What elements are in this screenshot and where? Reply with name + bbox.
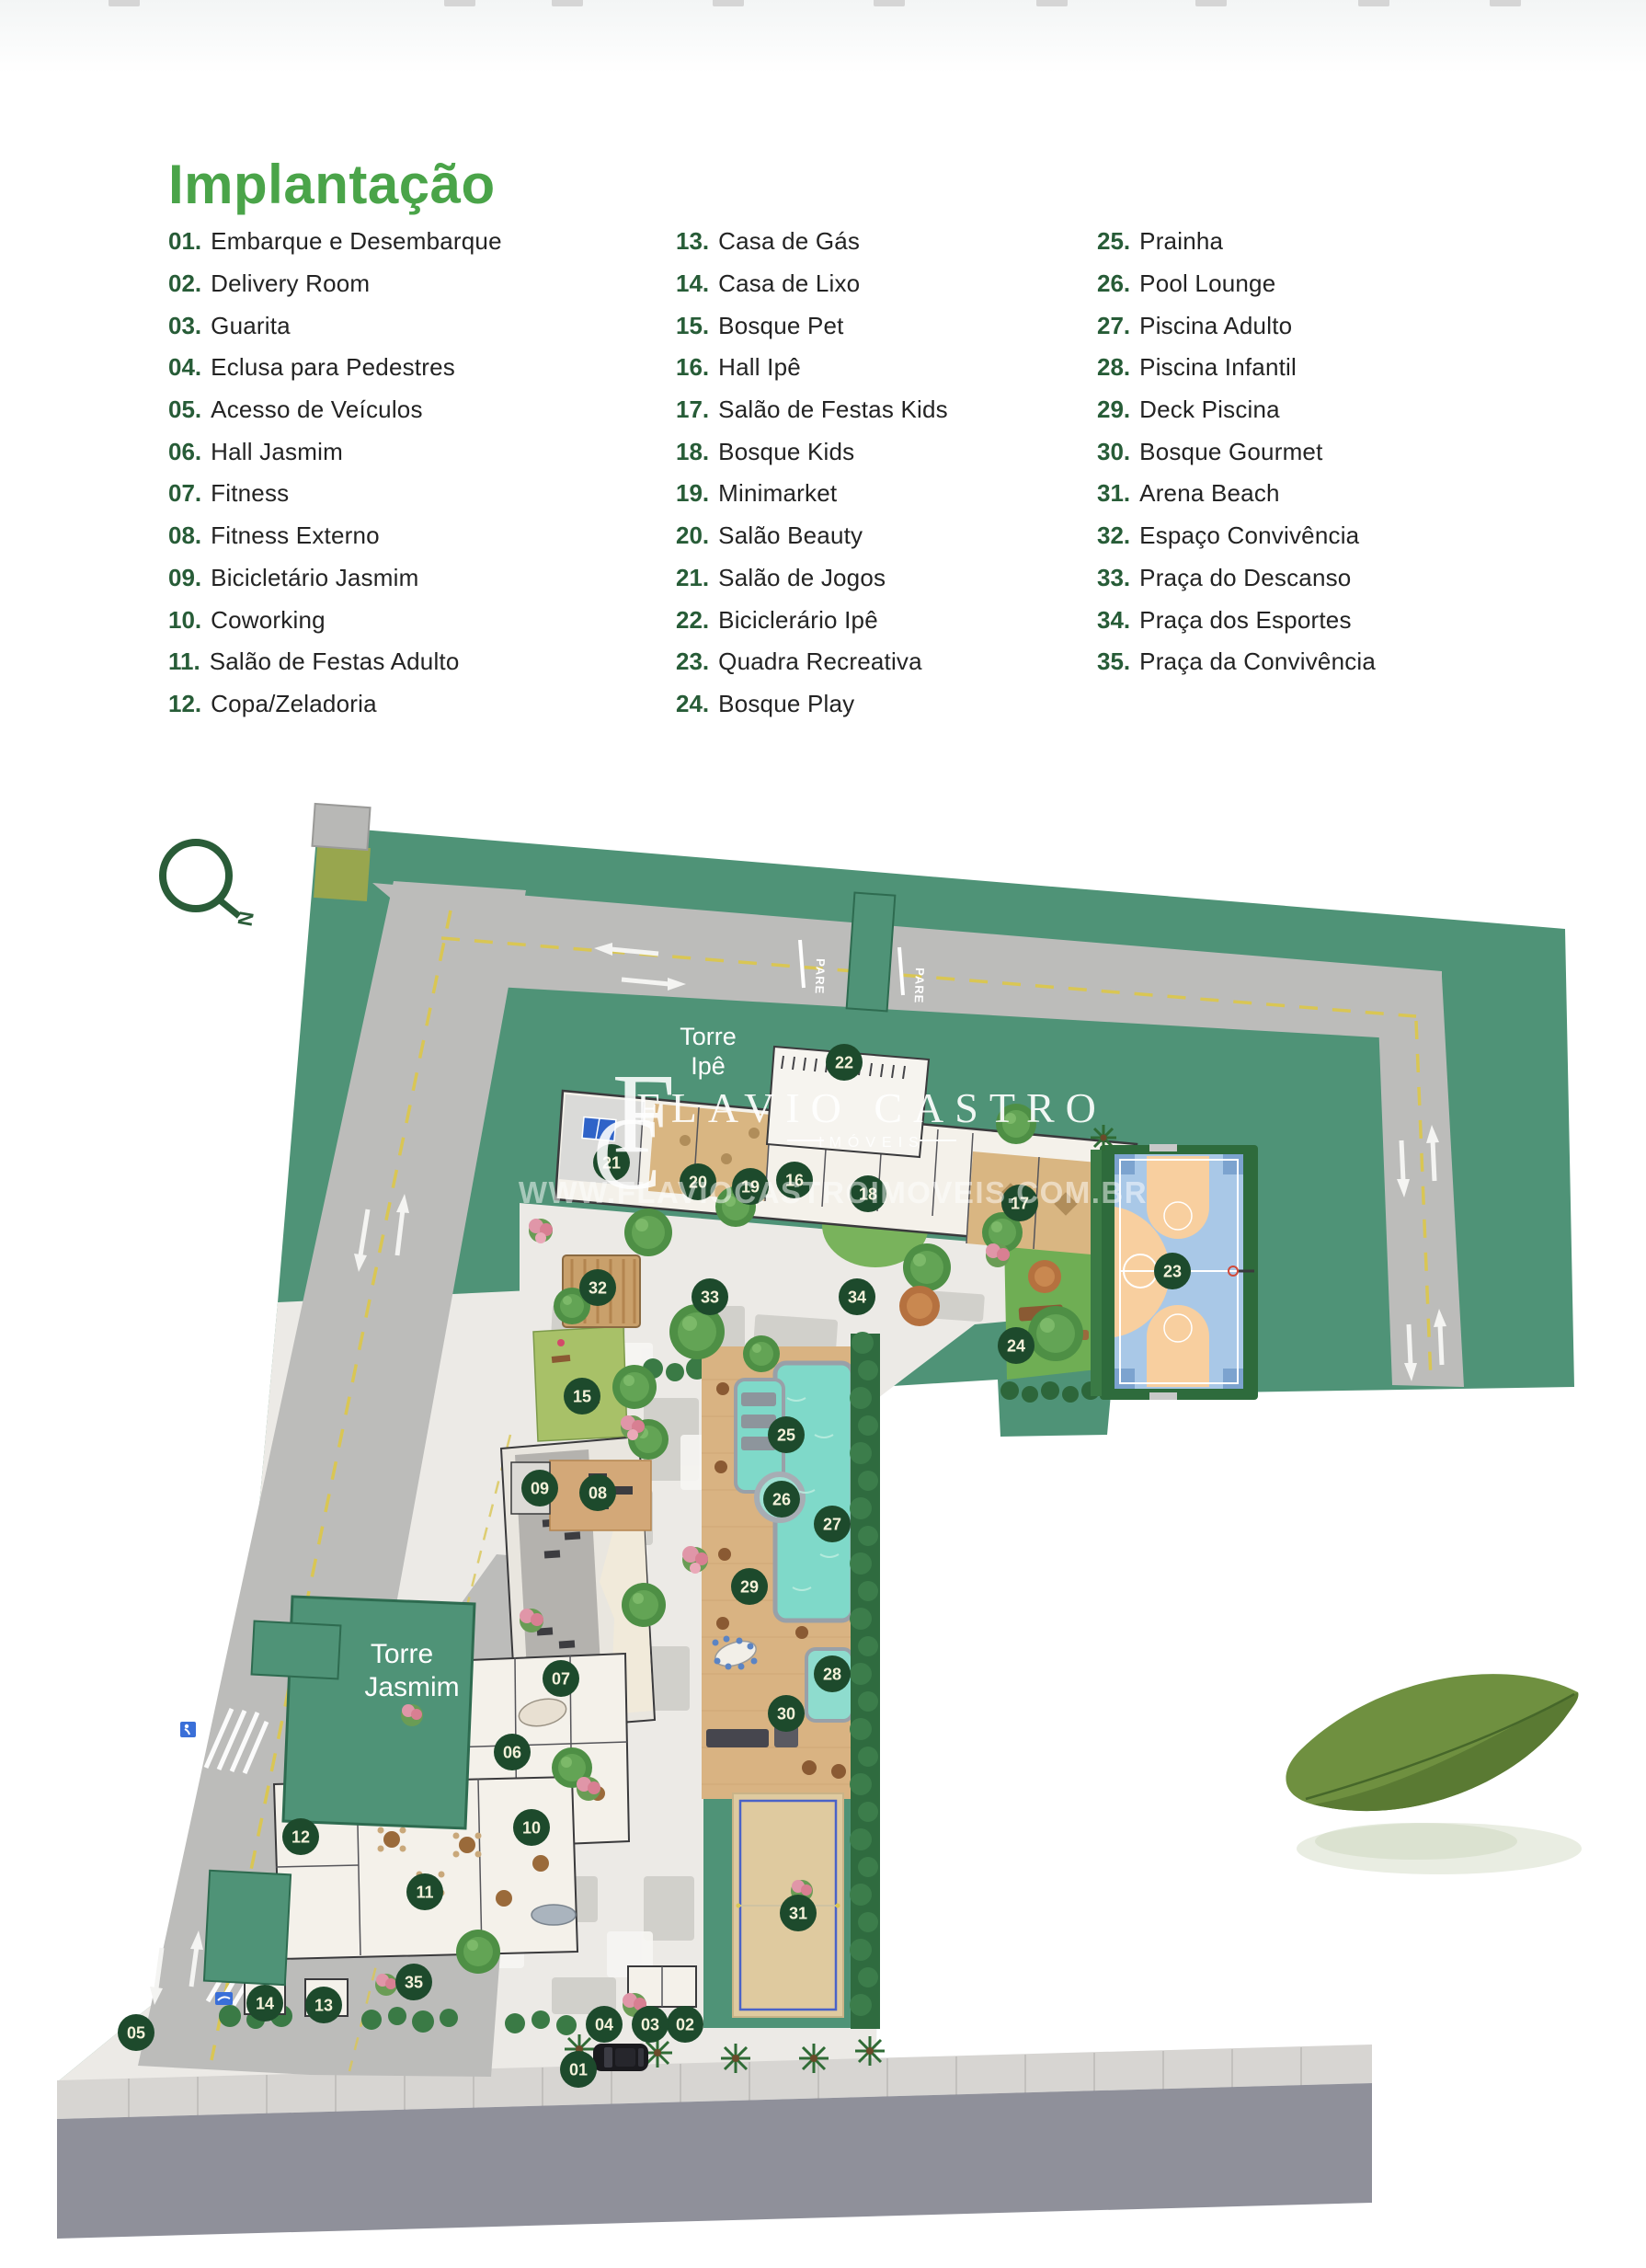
- legend-item: 34.Praça dos Esportes: [1097, 599, 1376, 641]
- tab-sliver: [874, 0, 905, 6]
- legend-item-number: 24.: [676, 690, 709, 718]
- legend-item-number: 14.: [676, 269, 709, 298]
- plan-marker-01: 01: [560, 2051, 597, 2088]
- plan-marker-25: 25: [768, 1416, 805, 1453]
- legend-item-label: Praça dos Esportes: [1139, 606, 1352, 635]
- legend-item: 33.Praça do Descanso: [1097, 557, 1376, 600]
- plan-marker-26: 26: [763, 1481, 800, 1518]
- svg-text:02: 02: [676, 2016, 694, 2034]
- legend-item-label: Quadra Recreativa: [718, 647, 922, 676]
- legend-item-label: Fitness Externo: [211, 521, 380, 550]
- svg-text:27: 27: [823, 1516, 841, 1534]
- legend-item-label: Praça da Convivência: [1139, 647, 1376, 676]
- plan-marker-28: 28: [814, 1655, 851, 1692]
- plan-marker-14: 14: [246, 1985, 283, 2022]
- legend-item: 18.Bosque Kids: [676, 430, 948, 473]
- legend-item-number: 19.: [676, 479, 709, 508]
- legend-item-number: 28.: [1097, 353, 1130, 382]
- plan-marker-02: 02: [667, 2006, 703, 2043]
- plan-marker-05: 05: [118, 2014, 154, 2051]
- legend-item: 01.Embarque e Desembarque: [168, 221, 502, 263]
- legend-item-label: Piscina Adulto: [1139, 312, 1292, 340]
- pare-marking-top-road-1: PARE: [813, 958, 828, 995]
- legend-item-number: 35.: [1097, 647, 1130, 676]
- svg-text:26: 26: [772, 1491, 791, 1509]
- site-plan-illustration: PARE PARE PARE: [0, 791, 1646, 2268]
- compass-icon: N: [163, 842, 258, 928]
- legend-item-label: Arena Beach: [1139, 479, 1280, 508]
- plan-marker-06: 06: [494, 1734, 531, 1770]
- legend-item-label: Deck Piscina: [1139, 395, 1280, 424]
- svg-text:25: 25: [777, 1426, 795, 1445]
- legend-item: 29.Deck Piscina: [1097, 389, 1376, 431]
- legend-item: 32.Espaço Convivência: [1097, 515, 1376, 557]
- svg-text:12: 12: [291, 1828, 310, 1847]
- legend-item: 25.Prainha: [1097, 221, 1376, 263]
- svg-text:03: 03: [641, 2016, 659, 2034]
- legend-item-label: Eclusa para Pedestres: [211, 353, 455, 382]
- tab-sliver: [1195, 0, 1227, 6]
- legend-item-label: Salão de Festas Adulto: [210, 647, 460, 676]
- legend-item-label: Bosque Play: [718, 690, 854, 718]
- legend-item-number: 10.: [168, 606, 201, 635]
- legend-item-label: Embarque e Desembarque: [211, 227, 502, 256]
- plan-marker-35: 35: [395, 1964, 432, 2000]
- tab-sliver: [713, 0, 744, 6]
- legend-item: 19.Minimarket: [676, 473, 948, 515]
- legend-item: 20.Salão Beauty: [676, 515, 948, 557]
- svg-text:09: 09: [531, 1480, 549, 1498]
- svg-text:15: 15: [573, 1388, 591, 1406]
- legend-item-number: 05.: [168, 395, 201, 424]
- plan-marker-08: 08: [579, 1474, 616, 1511]
- legend-item-number: 21.: [676, 564, 709, 592]
- legend-item-label: Bosque Pet: [718, 312, 843, 340]
- svg-text:35: 35: [405, 1974, 423, 1992]
- legend-column-3: 25.Prainha26.Pool Lounge27.Piscina Adult…: [1097, 221, 1376, 683]
- svg-text:05: 05: [127, 2024, 145, 2043]
- legend-item: 05.Acesso de Veículos: [168, 389, 502, 431]
- torre-jasmim-label-line1: Torre: [371, 1639, 433, 1669]
- legend-item-number: 07.: [168, 479, 201, 508]
- legend-item: 13.Casa de Gás: [676, 221, 948, 263]
- legend-item-number: 32.: [1097, 521, 1130, 550]
- watermark-url: WWW.FLAVIOCASTROIMOVEIS.COM.BR: [519, 1175, 1148, 1209]
- legend-item-number: 15.: [676, 312, 709, 340]
- legend-item-number: 26.: [1097, 269, 1130, 298]
- svg-text:33: 33: [701, 1289, 719, 1307]
- legend-item: 30.Bosque Gourmet: [1097, 430, 1376, 473]
- legend-item-label: Salão Beauty: [718, 521, 863, 550]
- page-top-fade: [0, 0, 1646, 74]
- svg-text:23: 23: [1163, 1263, 1182, 1281]
- legend-item-label: Piscina Infantil: [1139, 353, 1297, 382]
- legend-item-label: Minimarket: [718, 479, 837, 508]
- legend-item-number: 20.: [676, 521, 709, 550]
- legend-item-label: Bosque Kids: [718, 438, 854, 466]
- plan-marker-31: 31: [780, 1895, 817, 1931]
- legend-item: 06.Hall Jasmim: [168, 430, 502, 473]
- svg-text:11: 11: [416, 1884, 433, 1902]
- svg-text:14: 14: [256, 1995, 274, 2013]
- svg-text:24: 24: [1007, 1337, 1025, 1356]
- svg-text:10: 10: [522, 1819, 541, 1838]
- svg-text:22: 22: [835, 1054, 853, 1072]
- legend-item-label: Delivery Room: [211, 269, 370, 298]
- legend-item: 14.Casa de Lixo: [676, 263, 948, 305]
- plan-marker-07: 07: [543, 1660, 579, 1697]
- legend-column-1: 01.Embarque e Desembarque02.Delivery Roo…: [168, 221, 502, 725]
- svg-text:06: 06: [503, 1744, 521, 1762]
- plan-marker-10: 10: [513, 1809, 550, 1846]
- legend-item: 15.Bosque Pet: [676, 304, 948, 347]
- legend-item-label: Espaço Convivência: [1139, 521, 1359, 550]
- legend-item-number: 09.: [168, 564, 201, 592]
- tab-sliver: [109, 0, 140, 6]
- legend-item-number: 22.: [676, 606, 709, 635]
- legend-item-number: 25.: [1097, 227, 1130, 256]
- plan-marker-27: 27: [814, 1506, 851, 1542]
- legend-item-number: 27.: [1097, 312, 1130, 340]
- pare-marking-top-road-2: PARE: [912, 968, 927, 1004]
- watermark-tagline: IMÓVEIS: [818, 1133, 925, 1151]
- plan-marker-29: 29: [731, 1568, 768, 1605]
- svg-text:32: 32: [589, 1279, 607, 1298]
- legend-item-number: 18.: [676, 438, 709, 466]
- legend-item: 17.Salão de Festas Kids: [676, 389, 948, 431]
- svg-text:34: 34: [848, 1289, 866, 1307]
- legend-item: 04.Eclusa para Pedestres: [168, 347, 502, 389]
- svg-text:04: 04: [595, 2016, 613, 2034]
- legend-item: 07.Fitness: [168, 473, 502, 515]
- plan-marker-11: 11: [406, 1873, 443, 1910]
- plan-marker-09: 09: [521, 1470, 558, 1506]
- legend-item-number: 33.: [1097, 564, 1130, 592]
- legend-item: 10.Coworking: [168, 599, 502, 641]
- legend-item: 23.Quadra Recreativa: [676, 641, 948, 683]
- legend-item: 08.Fitness Externo: [168, 515, 502, 557]
- pedestrian-crossing-canopy: [847, 893, 896, 1012]
- svg-text:30: 30: [777, 1705, 795, 1724]
- legend-item-label: Coworking: [211, 606, 326, 635]
- page-title: Implantação: [168, 153, 496, 216]
- legend-item: 21.Salão de Jogos: [676, 557, 948, 600]
- legend-item: 03.Guarita: [168, 304, 502, 347]
- legend-item-number: 03.: [168, 312, 201, 340]
- legend-item-label: Biciclerário Ipê: [718, 606, 878, 635]
- tab-sliver: [1036, 0, 1068, 6]
- plan-marker-13: 13: [305, 1987, 342, 2023]
- plan-marker-23: 23: [1154, 1253, 1191, 1289]
- legend-item-number: 13.: [676, 227, 709, 256]
- plan-marker-12: 12: [282, 1818, 319, 1855]
- svg-text:07: 07: [552, 1670, 570, 1689]
- legend-item-number: 06.: [168, 438, 201, 466]
- plan-marker-03: 03: [632, 2006, 669, 2043]
- legend-item-label: Hall Jasmim: [211, 438, 343, 466]
- legend-item-number: 17.: [676, 395, 709, 424]
- compass-north-label: N: [233, 910, 257, 928]
- legend-item-number: 34.: [1097, 606, 1130, 635]
- legend-item: 22.Biciclerário Ipê: [676, 599, 948, 641]
- legend-item-number: 31.: [1097, 479, 1130, 508]
- legend-item-label: Casa de Lixo: [718, 269, 860, 298]
- legend-item-label: Bicicletário Jasmim: [211, 564, 418, 592]
- svg-text:08: 08: [589, 1484, 607, 1503]
- legend-item-label: Pool Lounge: [1139, 269, 1275, 298]
- torre-ipe-label-line1: Torre: [680, 1023, 737, 1050]
- legend-item-label: Praça do Descanso: [1139, 564, 1351, 592]
- legend-item-label: Casa de Gás: [718, 227, 860, 256]
- legend-item-label: Salão de Jogos: [718, 564, 886, 592]
- plan-marker-33: 33: [692, 1278, 728, 1315]
- legend-item: 09.Bicicletário Jasmim: [168, 557, 502, 600]
- legend-item-number: 29.: [1097, 395, 1130, 424]
- svg-text:01: 01: [569, 2061, 588, 2079]
- legend-item-number: 02.: [168, 269, 201, 298]
- legend-item-number: 01.: [168, 227, 201, 256]
- legend-item-number: 04.: [168, 353, 201, 382]
- legend-item-number: 12.: [168, 690, 201, 718]
- tab-sliver: [552, 0, 583, 6]
- svg-text:13: 13: [314, 1997, 333, 2015]
- legend-item: 28.Piscina Infantil: [1097, 347, 1376, 389]
- legend-item: 12.Copa/Zeladoria: [168, 683, 502, 726]
- legend-item-label: Fitness: [211, 479, 289, 508]
- plan-marker-15: 15: [564, 1378, 600, 1415]
- svg-text:28: 28: [823, 1666, 841, 1684]
- plan-marker-24: 24: [998, 1327, 1034, 1364]
- plan-marker-32: 32: [579, 1269, 616, 1306]
- legend-item: 02.Delivery Room: [168, 263, 502, 305]
- plan-marker-30: 30: [768, 1695, 805, 1732]
- watermark-name: FLAVIO CASTRO: [636, 1084, 1107, 1131]
- legend-item-label: Bosque Gourmet: [1139, 438, 1322, 466]
- tab-sliver: [1358, 0, 1389, 6]
- plan-marker-22: 22: [826, 1044, 863, 1081]
- legend-item: 26.Pool Lounge: [1097, 263, 1376, 305]
- legend-item-label: Salão de Festas Kids: [718, 395, 948, 424]
- legend-item-label: Hall Ipê: [718, 353, 801, 382]
- plan-marker-34: 34: [839, 1278, 875, 1315]
- torre-ipe-label-line2: Ipê: [691, 1052, 726, 1080]
- leaf-image: [1286, 1674, 1582, 1874]
- legend-item: 16.Hall Ipê: [676, 347, 948, 389]
- svg-text:31: 31: [789, 1905, 807, 1923]
- pool-hedge: [850, 1332, 880, 2029]
- legend-item-label: Copa/Zeladoria: [211, 690, 377, 718]
- legend-item-number: 16.: [676, 353, 709, 382]
- tab-sliver: [1490, 0, 1521, 6]
- svg-text:29: 29: [740, 1578, 759, 1597]
- car: [593, 2044, 648, 2071]
- legend-item-label: Acesso de Veículos: [211, 395, 423, 424]
- legend-item: 11.Salão de Festas Adulto: [168, 641, 502, 683]
- legend-item-number: 30.: [1097, 438, 1130, 466]
- plan-marker-04: 04: [586, 2006, 623, 2043]
- legend-item: 24.Bosque Play: [676, 683, 948, 726]
- legend-item-label: Guarita: [211, 312, 291, 340]
- legend-item-number: 23.: [676, 647, 709, 676]
- legend-item: 31.Arena Beach: [1097, 473, 1376, 515]
- legend-item-number: 08.: [168, 521, 201, 550]
- legend-item-label: Prainha: [1139, 227, 1223, 256]
- legend-item: 35.Praça da Convivência: [1097, 641, 1376, 683]
- legend-item-number: 11.: [168, 647, 200, 676]
- torre-jasmim-label-line2: Jasmim: [364, 1672, 459, 1702]
- tab-sliver: [444, 0, 475, 6]
- legend-item: 27.Piscina Adulto: [1097, 304, 1376, 347]
- legend-column-2: 13.Casa de Gás14.Casa de Lixo15.Bosque P…: [676, 221, 948, 725]
